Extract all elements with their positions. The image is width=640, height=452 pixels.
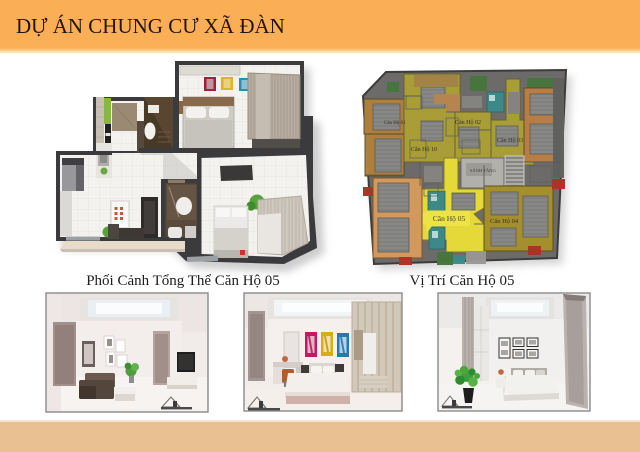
svg-text:DỰ ÁN CHUNG CƯ XÃ ĐÀN: DỰ ÁN CHUNG CƯ XÃ ĐÀN — [16, 14, 285, 38]
svg-text:Phối Cảnh Tổng Thể Căn Hộ 05: Phối Cảnh Tổng Thể Căn Hộ 05 — [86, 273, 280, 289]
svg-text:Vị Trí Căn Hộ 05: Vị Trí Căn Hộ 05 — [409, 273, 514, 289]
